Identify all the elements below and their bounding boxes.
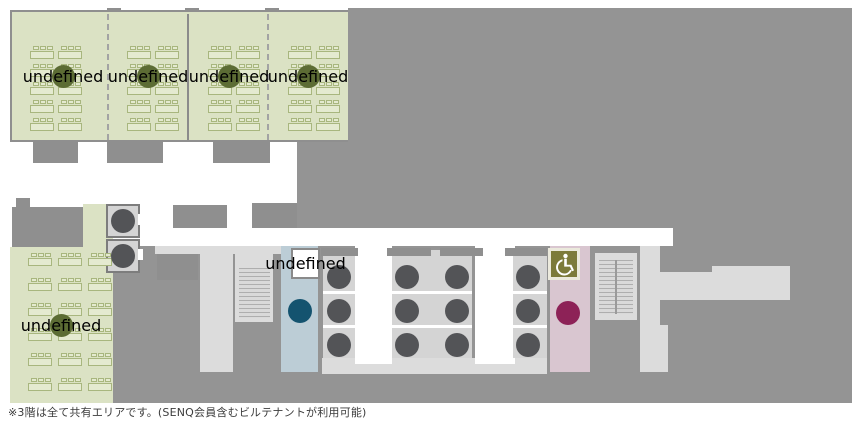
desk-unit xyxy=(28,378,52,391)
corridor-white-band xyxy=(138,228,673,246)
shaft-separator xyxy=(513,325,547,328)
kettle-icon: undefined xyxy=(295,253,317,275)
corridor-right-arm-a xyxy=(660,272,712,300)
desk-unit xyxy=(88,303,112,316)
desk-unit xyxy=(236,100,260,113)
elevator-icon xyxy=(516,333,540,357)
shaft-separator xyxy=(323,291,355,294)
elevator-lobby xyxy=(355,246,392,364)
male-icon xyxy=(288,299,312,323)
desk-unit xyxy=(28,253,52,266)
desk-unit xyxy=(127,46,151,59)
desk-unit xyxy=(88,278,112,291)
elevator-icon xyxy=(395,333,419,357)
female-icon xyxy=(556,301,580,325)
desk-unit xyxy=(155,100,179,113)
meeting-table-icon: undefined xyxy=(52,65,75,88)
stairs-right-divider xyxy=(615,260,617,314)
desk-unit xyxy=(30,100,54,113)
shaft-cap xyxy=(440,248,483,256)
desk-unit xyxy=(58,46,82,59)
desk-unit xyxy=(316,118,340,131)
meeting-table-icon: undefined xyxy=(218,65,241,88)
desk-unit xyxy=(236,46,260,59)
desk-unit xyxy=(58,118,82,131)
elevator-icon xyxy=(516,299,540,323)
pillar xyxy=(33,140,78,163)
desk-unit xyxy=(58,253,82,266)
corridor-left-vertical xyxy=(200,246,233,372)
desk-unit xyxy=(208,100,232,113)
elevator-icon xyxy=(445,299,469,323)
pillar xyxy=(16,198,30,207)
desk-unit xyxy=(208,118,232,131)
desk-unit xyxy=(30,46,54,59)
shaft-separator xyxy=(513,291,547,294)
desk-unit xyxy=(155,46,179,59)
desk-unit xyxy=(28,353,52,366)
elevator-icon xyxy=(327,299,351,323)
shaft-door xyxy=(138,249,143,260)
desk-unit xyxy=(58,378,82,391)
elevator-lobby xyxy=(475,246,515,364)
pillar xyxy=(213,140,270,163)
pillar xyxy=(173,205,227,228)
pillar xyxy=(107,140,163,163)
desk-unit xyxy=(30,118,54,131)
elevator-icon xyxy=(516,265,540,289)
elevator-icon xyxy=(327,333,351,357)
desk-unit xyxy=(208,46,232,59)
meeting-table-icon: undefined xyxy=(50,314,73,337)
floor-plan: ※3階は全て共有エリアです。(SENQ会員含むビルテナントが利用可能) unde… xyxy=(0,0,860,421)
desk-unit xyxy=(236,118,260,131)
elevator-icon xyxy=(111,244,135,268)
desk-unit xyxy=(88,378,112,391)
shaft-cap xyxy=(387,248,431,256)
desk-unit xyxy=(155,118,179,131)
shaft-separator xyxy=(392,291,472,294)
wall-block xyxy=(252,203,297,228)
corridor-right-lower xyxy=(640,325,668,372)
desk-unit xyxy=(58,278,82,291)
desk-unit xyxy=(316,100,340,113)
desk-unit xyxy=(288,118,312,131)
elevator-icon xyxy=(445,333,469,357)
meeting-table-icon: undefined xyxy=(137,65,160,88)
desk-unit xyxy=(127,118,151,131)
desk-unit xyxy=(58,353,82,366)
desk-unit xyxy=(58,100,82,113)
elevator-icon xyxy=(395,265,419,289)
desk-unit xyxy=(28,303,52,316)
wall-block xyxy=(157,254,198,280)
desk-unit xyxy=(127,100,151,113)
desk-unit xyxy=(88,253,112,266)
floor-plate-center xyxy=(297,140,348,228)
corridor-right-arm-b xyxy=(712,266,790,300)
shaft-cap xyxy=(505,248,547,256)
desk-unit xyxy=(316,46,340,59)
wall-block xyxy=(12,207,83,247)
wheelchair-icon xyxy=(551,251,577,277)
shaft-separator xyxy=(392,325,472,328)
desk-unit xyxy=(88,353,112,366)
stairs-left xyxy=(239,268,270,318)
desk-unit xyxy=(28,278,52,291)
desk-unit xyxy=(288,100,312,113)
desk-unit xyxy=(288,46,312,59)
shaft-separator xyxy=(323,325,355,328)
elevator-icon xyxy=(395,299,419,323)
elevator-icon xyxy=(445,265,469,289)
elevator-icon xyxy=(111,209,135,233)
floor-caption: ※3階は全て共有エリアです。(SENQ会員含むビルテナントが利用可能) xyxy=(8,404,367,420)
meeting-table-icon: undefined xyxy=(297,65,320,88)
shaft-door xyxy=(138,214,143,225)
